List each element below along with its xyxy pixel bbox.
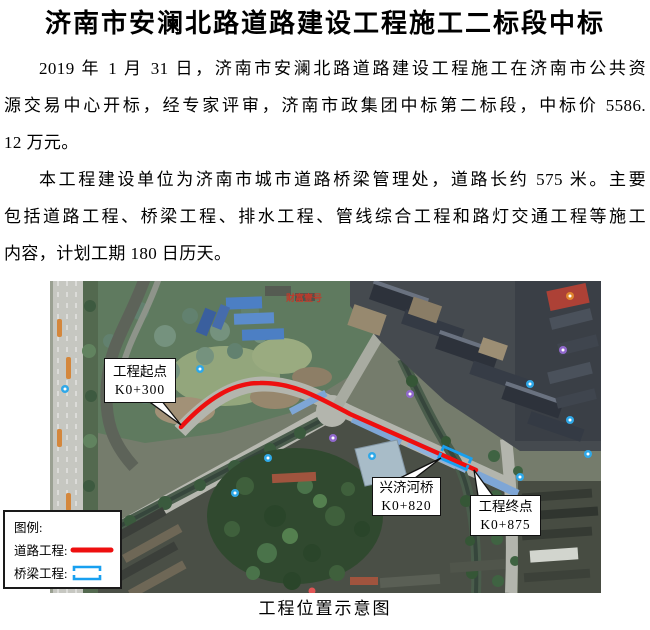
figure-caption: 工程位置示意图	[0, 596, 650, 622]
paragraph-line: 2019 年 1 月 31 日，济南市安澜北路道路建设工程施工在济南市公共资	[4, 50, 646, 87]
legend-bridge-row: 桥梁工程:	[14, 561, 120, 584]
callout-start-chainage: K0+300	[115, 381, 165, 399]
callout-bridge-label: 兴济河桥	[380, 479, 434, 497]
callout-end-label: 工程终点	[479, 498, 533, 516]
map-legend: 图例: 道路工程: 桥梁工程:	[3, 510, 122, 589]
paragraph-line: 源交易中心开标，经专家评审，济南市政集团中标第二标段，中标价 5586.	[4, 87, 646, 124]
bridge-symbol-swatch-icon	[70, 563, 106, 583]
callout-project-start: 工程起点 K0+300	[104, 358, 176, 403]
paragraph-line: 12 万元。	[4, 124, 646, 161]
callout-xingji-bridge: 兴济河桥 K0+820	[372, 477, 441, 516]
callout-start-label: 工程起点	[113, 363, 167, 381]
satellite-map-image: 财富壹号	[50, 281, 601, 593]
document-page: { "document": { "title": "济南市安澜北路道路建设工程施…	[0, 0, 650, 630]
paragraph-bid-result: 2019 年 1 月 31 日，济南市安澜北路道路建设工程施工在济南市公共资 源…	[4, 50, 646, 161]
legend-road-label: 道路工程:	[14, 540, 67, 559]
paragraph-line: 包括道路工程、桥梁工程、排水工程、管线综合工程和路灯交通工程等施工	[4, 198, 646, 235]
legend-bridge-label: 桥梁工程:	[14, 563, 67, 582]
callout-end-chainage: K0+875	[480, 516, 530, 534]
paragraph-line: 内容，计划工期 180 日历天。	[4, 235, 646, 272]
callout-bridge-chainage: K0+820	[381, 497, 431, 515]
paragraph-project-scope: 本工程建设单位为济南市城市道路桥梁管理处，道路长约 575 米。主要 包括道路工…	[4, 161, 646, 272]
callout-project-end: 工程终点 K0+875	[470, 495, 541, 536]
legend-road-row: 道路工程:	[14, 538, 120, 561]
poi-label-caifu: 财富壹号	[285, 292, 322, 303]
legend-heading-row: 图例:	[14, 515, 120, 538]
paragraph-line: 本工程建设单位为济南市城市道路桥梁管理处，道路长约 575 米。主要	[4, 161, 646, 198]
legend-heading: 图例:	[14, 517, 42, 536]
project-location-map: 财富壹号 工程起点 K0+300 兴济河桥 K0+820 工程终点 K0+875	[50, 281, 601, 593]
road-line-swatch-icon	[70, 545, 114, 555]
page-title: 济南市安澜北路道路建设工程施工二标段中标	[0, 4, 650, 44]
